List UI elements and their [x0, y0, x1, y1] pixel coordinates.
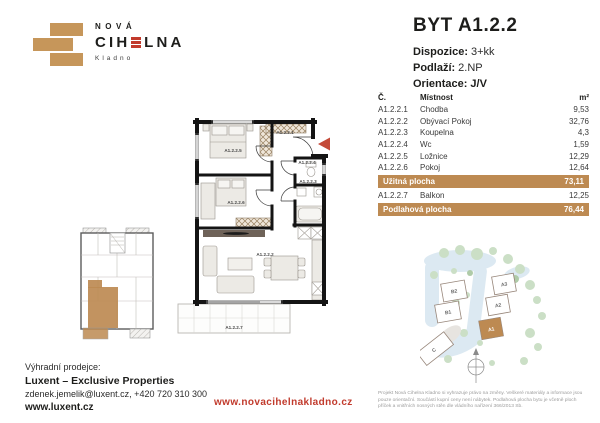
table-row: A1.2.2.2 Obývací Pokoj 32,76	[378, 116, 589, 128]
field-label: Podlaží:	[413, 62, 455, 74]
svg-text:A1: A1	[488, 326, 496, 333]
entrance-arrow-icon	[318, 138, 330, 151]
floor-area-row: Podlahová plocha 76,44	[378, 203, 589, 216]
room-label: A1.2.2.6	[227, 200, 245, 205]
compass-icon	[468, 348, 484, 383]
logo-cihelna-right: LNA	[144, 34, 184, 51]
col-header-room: Místnost	[420, 93, 549, 102]
area-table: Č. Místnost m² A1.2.2.1 Chodba 9,53 A1.2…	[378, 91, 589, 217]
room-label: A1.2.2.7	[225, 325, 243, 330]
table-row: A1.2.2.5 Ložnice 12,29	[378, 150, 589, 162]
unit-field-orientace: Orientace:J/V	[413, 76, 593, 92]
field-label: Orientace:	[413, 78, 467, 90]
col-header-area: m²	[549, 93, 589, 102]
floor-plan: A1.2.2.5 A1.2.2.1 A1.2.2.4 A1.2.2.3 A1.2…	[170, 86, 375, 338]
logo-cihelna-text: CIH LNA	[95, 34, 185, 51]
logo-bricks-icon	[33, 23, 85, 69]
table-row: A1.2.2.6 Pokoj 12,64	[378, 162, 589, 174]
logo-nova-text: NOVÁ	[95, 22, 185, 31]
unit-field-dispozice: Dispozice:3+kk	[413, 44, 593, 60]
building-a2: A2	[486, 294, 511, 316]
room-label: A1.2.2.4	[298, 160, 316, 165]
svg-text:B2: B2	[450, 288, 458, 295]
building-a1-highlighted: A1	[479, 317, 504, 340]
logo-city-text: Kladno	[95, 55, 185, 62]
svg-text:A2: A2	[494, 302, 502, 309]
room-label: A1.2.2.3	[299, 179, 317, 184]
logo-e-bars-icon	[131, 37, 141, 49]
table-row: A1.2.2.1 Chodba 9,53	[378, 104, 589, 116]
building-a3: A3	[492, 273, 517, 295]
field-value: J/V	[470, 78, 487, 90]
usable-area-row: Užitná plocha 73,11	[378, 175, 589, 188]
area-table-header: Č. Místnost m²	[378, 91, 589, 104]
room-label: A1.2.2.2	[256, 252, 274, 257]
room-label: A1.2.2.5	[224, 148, 242, 153]
col-header-number: Č.	[378, 93, 420, 102]
unit-title: BYT A1.2.2	[413, 15, 593, 37]
building-b1: B1	[435, 301, 462, 323]
unit-header: BYT A1.2.2 Dispozice:3+kk Podlaží:2.NP O…	[413, 15, 593, 92]
logo: NOVÁ CIH LNA Kladno	[33, 22, 223, 72]
seller-contact[interactable]: zdenek.jemelik@luxent.cz, +420 720 310 3…	[25, 388, 245, 401]
field-label: Dispozice:	[413, 46, 468, 58]
flyer-page: NOVÁ CIH LNA Kladno BYT A1.2.2 Dispozice…	[0, 0, 600, 423]
logo-cihelna-left: CIH	[95, 34, 130, 51]
room-label: A1.2.2.1	[276, 130, 294, 135]
site-plan: B2 B1 A3 A2 A1 C	[420, 243, 592, 391]
table-row-balcony: A1.2.2.7 Balkon 12,25	[378, 190, 589, 202]
svg-text:B1: B1	[444, 309, 452, 316]
unit-field-podlazi: Podlaží:2.NP	[413, 60, 593, 76]
highlighted-unit	[83, 280, 118, 339]
building-b2: B2	[441, 280, 468, 302]
table-row: A1.2.2.3 Koupelna 4,3	[378, 127, 589, 139]
seller-website-link[interactable]: www.luxent.cz	[25, 401, 245, 415]
floor-overview-minimap	[58, 225, 183, 343]
seller-name: Luxent – Exclusive Properties	[25, 374, 245, 388]
field-value: 2.NP	[458, 62, 482, 74]
seller-block: Výhradní prodejce: Luxent – Exclusive Pr…	[25, 360, 245, 415]
disclaimer-text: Projekt Nová Cihelna Kladno si vyhrazuje…	[378, 391, 589, 411]
table-row: A1.2.2.4 Wc 1,59	[378, 139, 589, 151]
svg-text:A3: A3	[500, 281, 508, 288]
project-website-link[interactable]: www.novacihelnakladno.cz	[214, 397, 353, 408]
field-value: 3+kk	[471, 46, 495, 58]
seller-label: Výhradní prodejce:	[25, 360, 245, 374]
